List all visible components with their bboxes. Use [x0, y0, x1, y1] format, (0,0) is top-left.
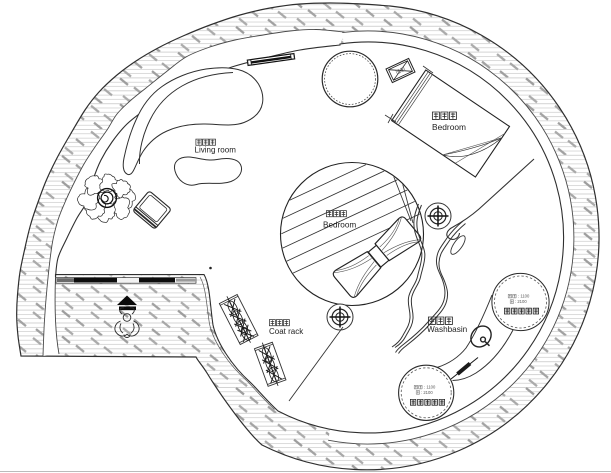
svg-text:: 2100: : 2100	[515, 299, 527, 304]
svg-text:Washbasin: Washbasin	[427, 325, 468, 334]
svg-text:: 1100: : 1100	[518, 294, 530, 299]
svg-text:Living room: Living room	[195, 146, 237, 155]
svg-text:Coat rack: Coat rack	[269, 327, 304, 336]
svg-text:: 1100: : 1100	[424, 385, 436, 390]
svg-text:Bedroom: Bedroom	[432, 122, 466, 132]
svg-text:: 2100: : 2100	[421, 390, 433, 395]
svg-text:Bedroom: Bedroom	[323, 221, 356, 230]
